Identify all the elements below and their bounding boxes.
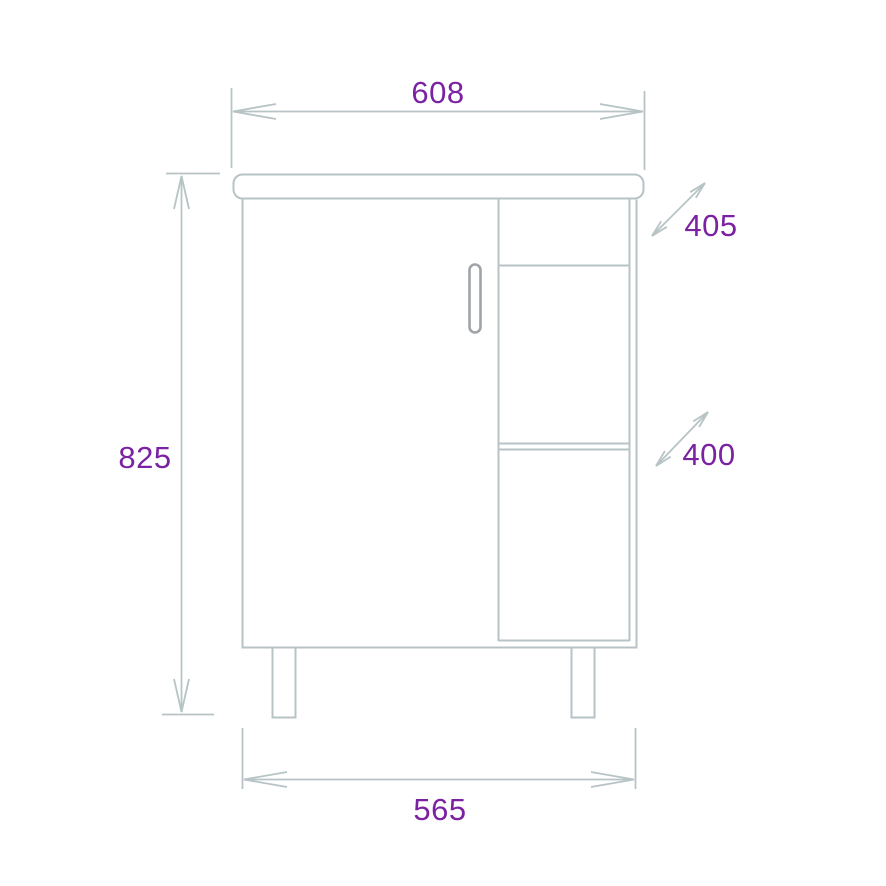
technical-drawing-canvas: 608 825 565 405	[0, 0, 886, 886]
dimension-label-lower-depth: 400	[682, 437, 735, 472]
door-handle	[470, 265, 481, 333]
dimension-top-width: 608	[232, 75, 645, 170]
dimension-label-upper-depth: 405	[684, 208, 737, 243]
dimension-lower-depth: 400	[656, 412, 736, 472]
dimension-bottom-width: 565	[243, 728, 636, 827]
right-leg	[572, 648, 595, 718]
dimension-upper-depth: 405	[652, 183, 738, 243]
cabinet-figure	[234, 175, 644, 718]
countertop	[234, 175, 644, 199]
left-leg	[273, 648, 296, 718]
dimension-label-top-width: 608	[411, 75, 464, 110]
dimension-overall-height: 825	[118, 174, 220, 715]
dimension-label-bottom-width: 565	[413, 792, 466, 827]
vanity-cabinet-drawing: 608 825 565 405	[0, 0, 886, 886]
cabinet-body-outline	[243, 200, 637, 648]
dimension-label-overall-height: 825	[118, 440, 171, 475]
